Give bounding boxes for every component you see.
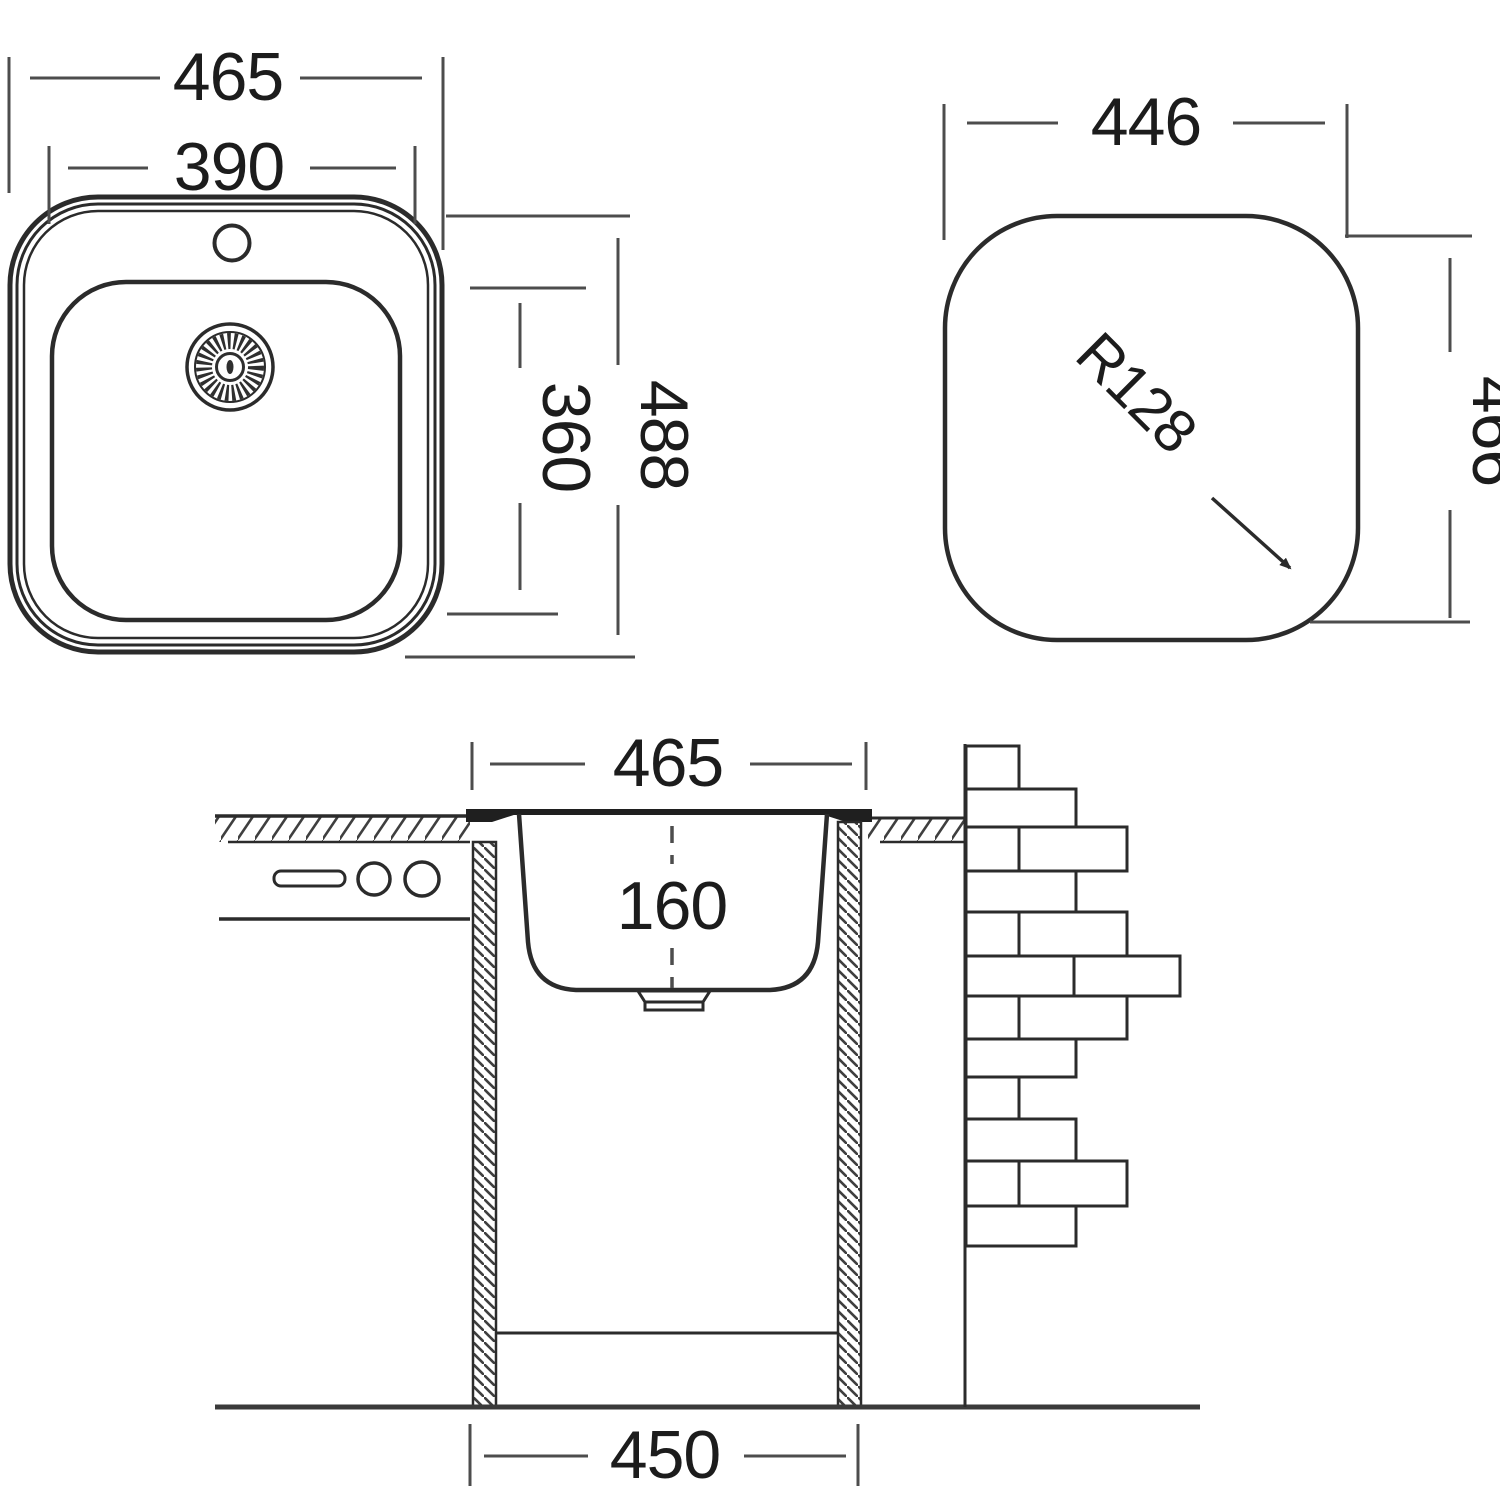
- appliance-handle-slot: [274, 871, 345, 886]
- cabinet-wall-right: [838, 822, 861, 1407]
- sink-rim-outer-outline: [10, 197, 442, 652]
- brick: [966, 1077, 1019, 1119]
- sink-rim-inner-outline: [24, 211, 428, 638]
- worktop-right-hatch: [868, 818, 965, 842]
- dim-label-top-overall-width: 465: [173, 39, 283, 115]
- dim-label-section-rim-width: 465: [613, 725, 723, 801]
- dim-label-top-overall-depth: 488: [626, 380, 702, 490]
- brick: [966, 871, 1076, 912]
- top-view: 465 390 488 360: [9, 39, 702, 657]
- dim-label-top-bowl-width: 390: [174, 129, 284, 205]
- worktop-left: [215, 816, 470, 919]
- brick: [966, 1206, 1076, 1246]
- dim-section-cabinet-width: 450: [470, 1417, 858, 1493]
- drain: [187, 324, 273, 410]
- brick: [966, 1039, 1076, 1077]
- drain-fitting: [638, 991, 710, 1010]
- brick: [1019, 827, 1127, 871]
- brick: [1019, 996, 1127, 1039]
- worktop-right: [866, 818, 965, 842]
- cabinet-wall-left: [473, 842, 496, 1407]
- cutout-view: 446 466 R128: [944, 84, 1500, 640]
- brick: [1019, 912, 1127, 956]
- sink-technical-drawing: 465 390 488 360: [0, 0, 1500, 1500]
- dim-label-section-bowl-depth: 160: [617, 868, 727, 944]
- drain-center-slot: [227, 360, 234, 374]
- dim-label-section-cabinet-width: 450: [610, 1417, 720, 1493]
- drawing-canvas: 465 390 488 360: [0, 0, 1500, 1500]
- appliance-knob-right: [405, 862, 439, 896]
- sink-rim-middle-outline: [17, 204, 435, 645]
- rim-clamp-left: [466, 809, 520, 822]
- brick: [966, 746, 1019, 789]
- dim-label-top-bowl-depth: 360: [528, 382, 604, 492]
- dim-top-bowl-depth: 360: [447, 288, 604, 614]
- dim-label-corner-radius: R128: [1064, 320, 1210, 466]
- dim-cutout-height: 466: [1310, 236, 1500, 622]
- brick: [966, 827, 1019, 871]
- brick: [966, 1161, 1019, 1206]
- section-view: 465: [215, 725, 1200, 1493]
- brick-wall: [965, 744, 1180, 1407]
- brick: [966, 996, 1019, 1039]
- dim-section-rim-width: 465: [472, 725, 866, 801]
- dim-label-cutout-height: 466: [1458, 376, 1500, 486]
- brick: [966, 956, 1074, 996]
- drain-fitting-nut: [645, 1002, 703, 1010]
- brick: [1019, 1161, 1127, 1206]
- brick: [1074, 956, 1180, 996]
- dim-section-bowl-depth: 160: [617, 826, 727, 988]
- drain-fitting-body: [638, 991, 710, 1002]
- worktop-left-hatch: [215, 816, 470, 842]
- brick: [966, 789, 1076, 827]
- dim-corner-radius: R128: [1064, 320, 1290, 568]
- brick: [966, 912, 1019, 956]
- faucet-hole: [215, 226, 250, 261]
- radius-arrow: [1212, 498, 1290, 568]
- appliance-knob-left: [358, 863, 390, 895]
- dim-label-cutout-width: 446: [1091, 84, 1201, 160]
- brick: [966, 1119, 1076, 1161]
